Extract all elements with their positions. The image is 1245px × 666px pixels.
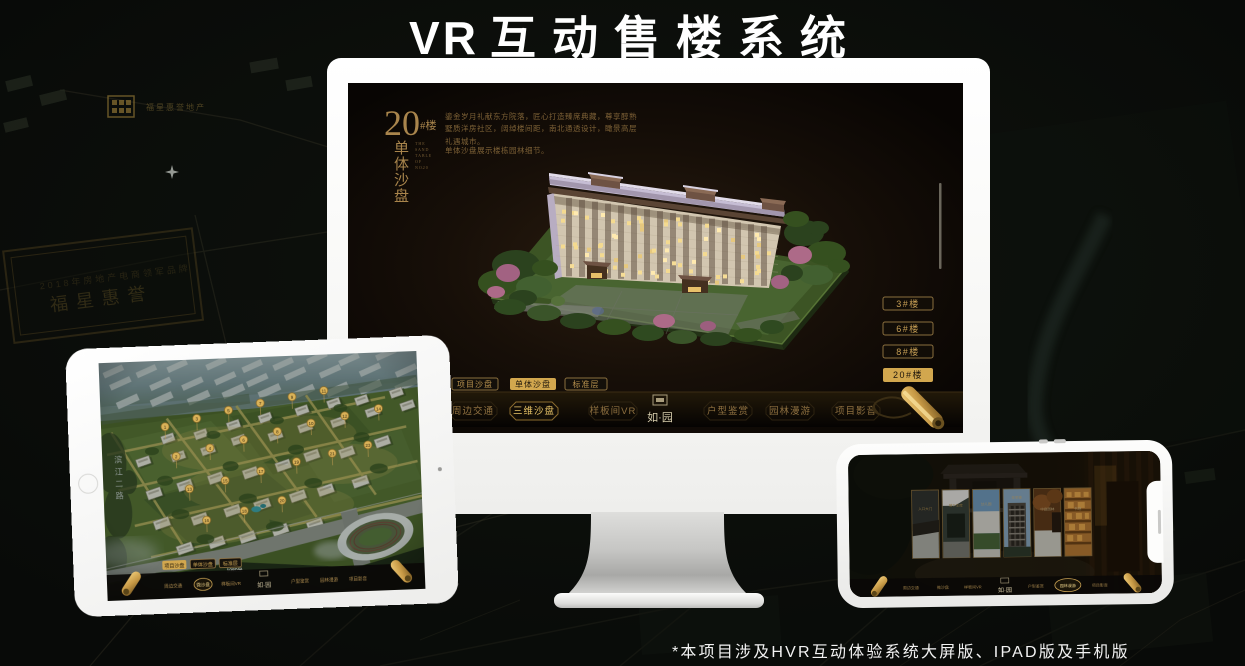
svg-text:T A B L E: T A B L E [415, 153, 432, 158]
svg-text:T H E: T H E [415, 141, 425, 146]
svg-text:福星惠誉地产: 福星惠誉地产 [146, 102, 206, 112]
svg-text:14: 14 [376, 406, 382, 411]
svg-text:周边交通: 周边交通 [452, 405, 494, 417]
svg-text:项目影音: 项目影音 [835, 405, 877, 417]
svg-text:13: 13 [187, 487, 193, 492]
svg-text:项目沙盘: 项目沙盘 [457, 379, 493, 389]
svg-text:16: 16 [204, 518, 210, 523]
svg-text:12: 12 [342, 414, 348, 419]
svg-text:标准层: 标准层 [223, 560, 238, 568]
svg-text:6#楼: 6#楼 [896, 323, 920, 334]
svg-text:21: 21 [330, 451, 336, 456]
svg-text:如·园: 如·园 [647, 410, 673, 424]
svg-text:鎏金岁月礼献东方院落，匠心打造臻席典藏，尊享醇熟: 鎏金岁月礼献东方院落，匠心打造臻席典藏，尊享醇熟 [445, 111, 637, 121]
svg-text:单体沙盘: 单体沙盘 [193, 561, 213, 569]
svg-text:样板间VR: 样板间VR [590, 405, 637, 417]
svg-text:户型鉴赏: 户型鉴赏 [707, 405, 749, 417]
svg-text:户型鉴赏: 户型鉴赏 [1028, 582, 1044, 588]
svg-text:园林漫游: 园林漫游 [1060, 582, 1076, 588]
svg-text:样板间VR: 样板间VR [964, 583, 982, 589]
svg-text:如·园: 如·园 [998, 586, 1012, 594]
svg-text:15: 15 [223, 478, 229, 483]
svg-text:19: 19 [294, 460, 300, 465]
svg-text:项目影音: 项目影音 [1092, 582, 1108, 588]
svg-text:20#楼: 20#楼 [893, 369, 923, 380]
svg-text:11: 11 [321, 388, 326, 393]
svg-text:3#楼: 3#楼 [896, 298, 920, 309]
svg-text:23: 23 [365, 443, 371, 448]
svg-text:8#楼: 8#楼 [896, 346, 920, 357]
svg-text:20: 20 [279, 498, 285, 503]
svg-text:10: 10 [308, 421, 314, 426]
svg-text:园林漫游: 园林漫游 [769, 405, 811, 417]
svg-text:单体沙盘: 单体沙盘 [515, 379, 551, 389]
svg-text:20: 20 [384, 103, 420, 143]
svg-text:单体沙盘: 单体沙盘 [394, 140, 409, 205]
svg-text:O F: O F [415, 159, 422, 164]
svg-text:周边交通: 周边交通 [903, 584, 919, 590]
svg-text:S A N D: S A N D [415, 147, 429, 152]
svg-text:墅质洋房社区，阔绰楼间距，南北通透设计，瞰景高层: 墅质洋房社区，阔绰楼间距，南北通透设计，瞰景高层 [445, 123, 637, 133]
svg-text:礼遇城市。: 礼遇城市。 [445, 136, 485, 146]
svg-text:单体沙盘展示楼栋园林细节。: 单体沙盘展示楼栋园林细节。 [445, 145, 549, 155]
svg-text:项目沙盘: 项目沙盘 [164, 562, 184, 570]
svg-text:三维沙盘: 三维沙盘 [513, 405, 555, 417]
svg-text:N O.2 0: N O.2 0 [415, 165, 428, 170]
svg-text:18: 18 [242, 509, 248, 514]
svg-text:17: 17 [258, 469, 264, 474]
svg-text:标准层: 标准层 [573, 379, 600, 389]
svg-text:#楼: #楼 [420, 118, 437, 132]
svg-text:微沙盘: 微沙盘 [937, 584, 949, 590]
